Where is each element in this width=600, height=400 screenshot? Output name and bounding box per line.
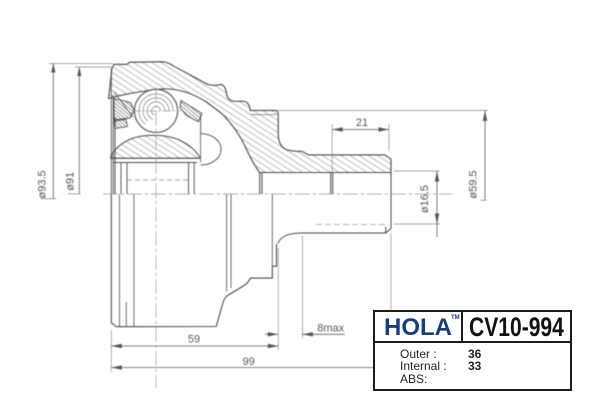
svg-text:8max: 8max [317,323,344,335]
svg-text:99: 99 [242,356,254,368]
svg-text:ø16.5: ø16.5 [419,185,431,213]
svg-text:ø91: ø91 [65,172,77,191]
svg-text:ø93.5: ø93.5 [37,170,49,198]
svg-text:ø59.5: ø59.5 [468,170,480,198]
svg-text:21: 21 [356,117,368,129]
svg-text:59: 59 [188,333,200,345]
